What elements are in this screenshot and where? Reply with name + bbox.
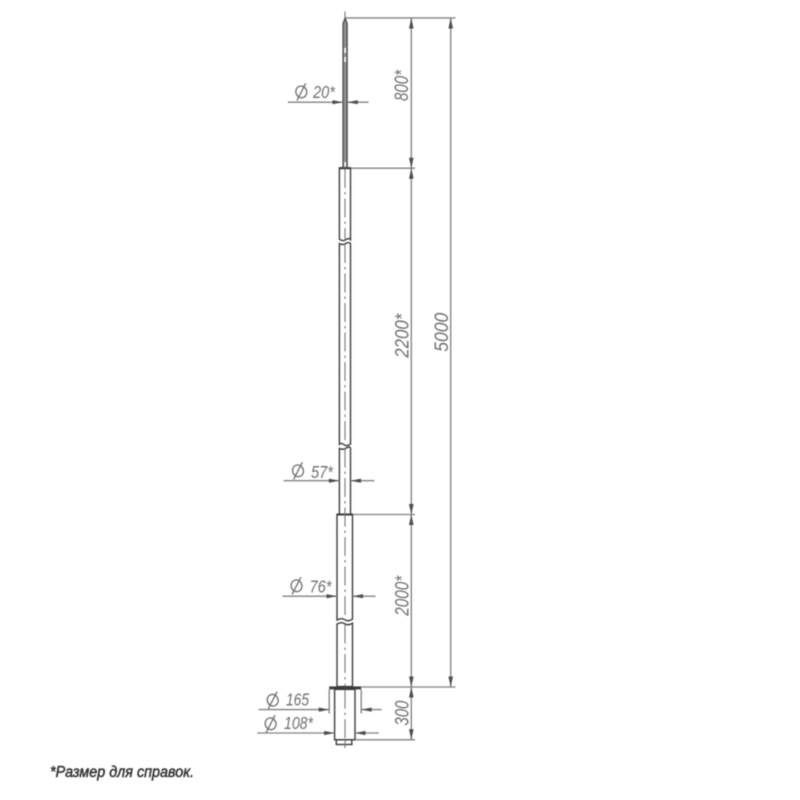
svg-text:108*: 108*: [284, 713, 314, 733]
svg-text:76*: 76*: [310, 577, 333, 597]
svg-text:57*: 57*: [311, 462, 334, 482]
svg-text:165: 165: [286, 690, 309, 710]
svg-text:20*: 20*: [312, 82, 336, 102]
svg-text:800*: 800*: [391, 69, 413, 101]
svg-text:2200*: 2200*: [392, 312, 414, 358]
svg-text:*Размер для справок.: *Размер для справок.: [50, 764, 194, 781]
svg-text:2000*: 2000*: [392, 575, 414, 617]
svg-text:300: 300: [392, 700, 414, 725]
svg-text:5000: 5000: [431, 313, 453, 352]
